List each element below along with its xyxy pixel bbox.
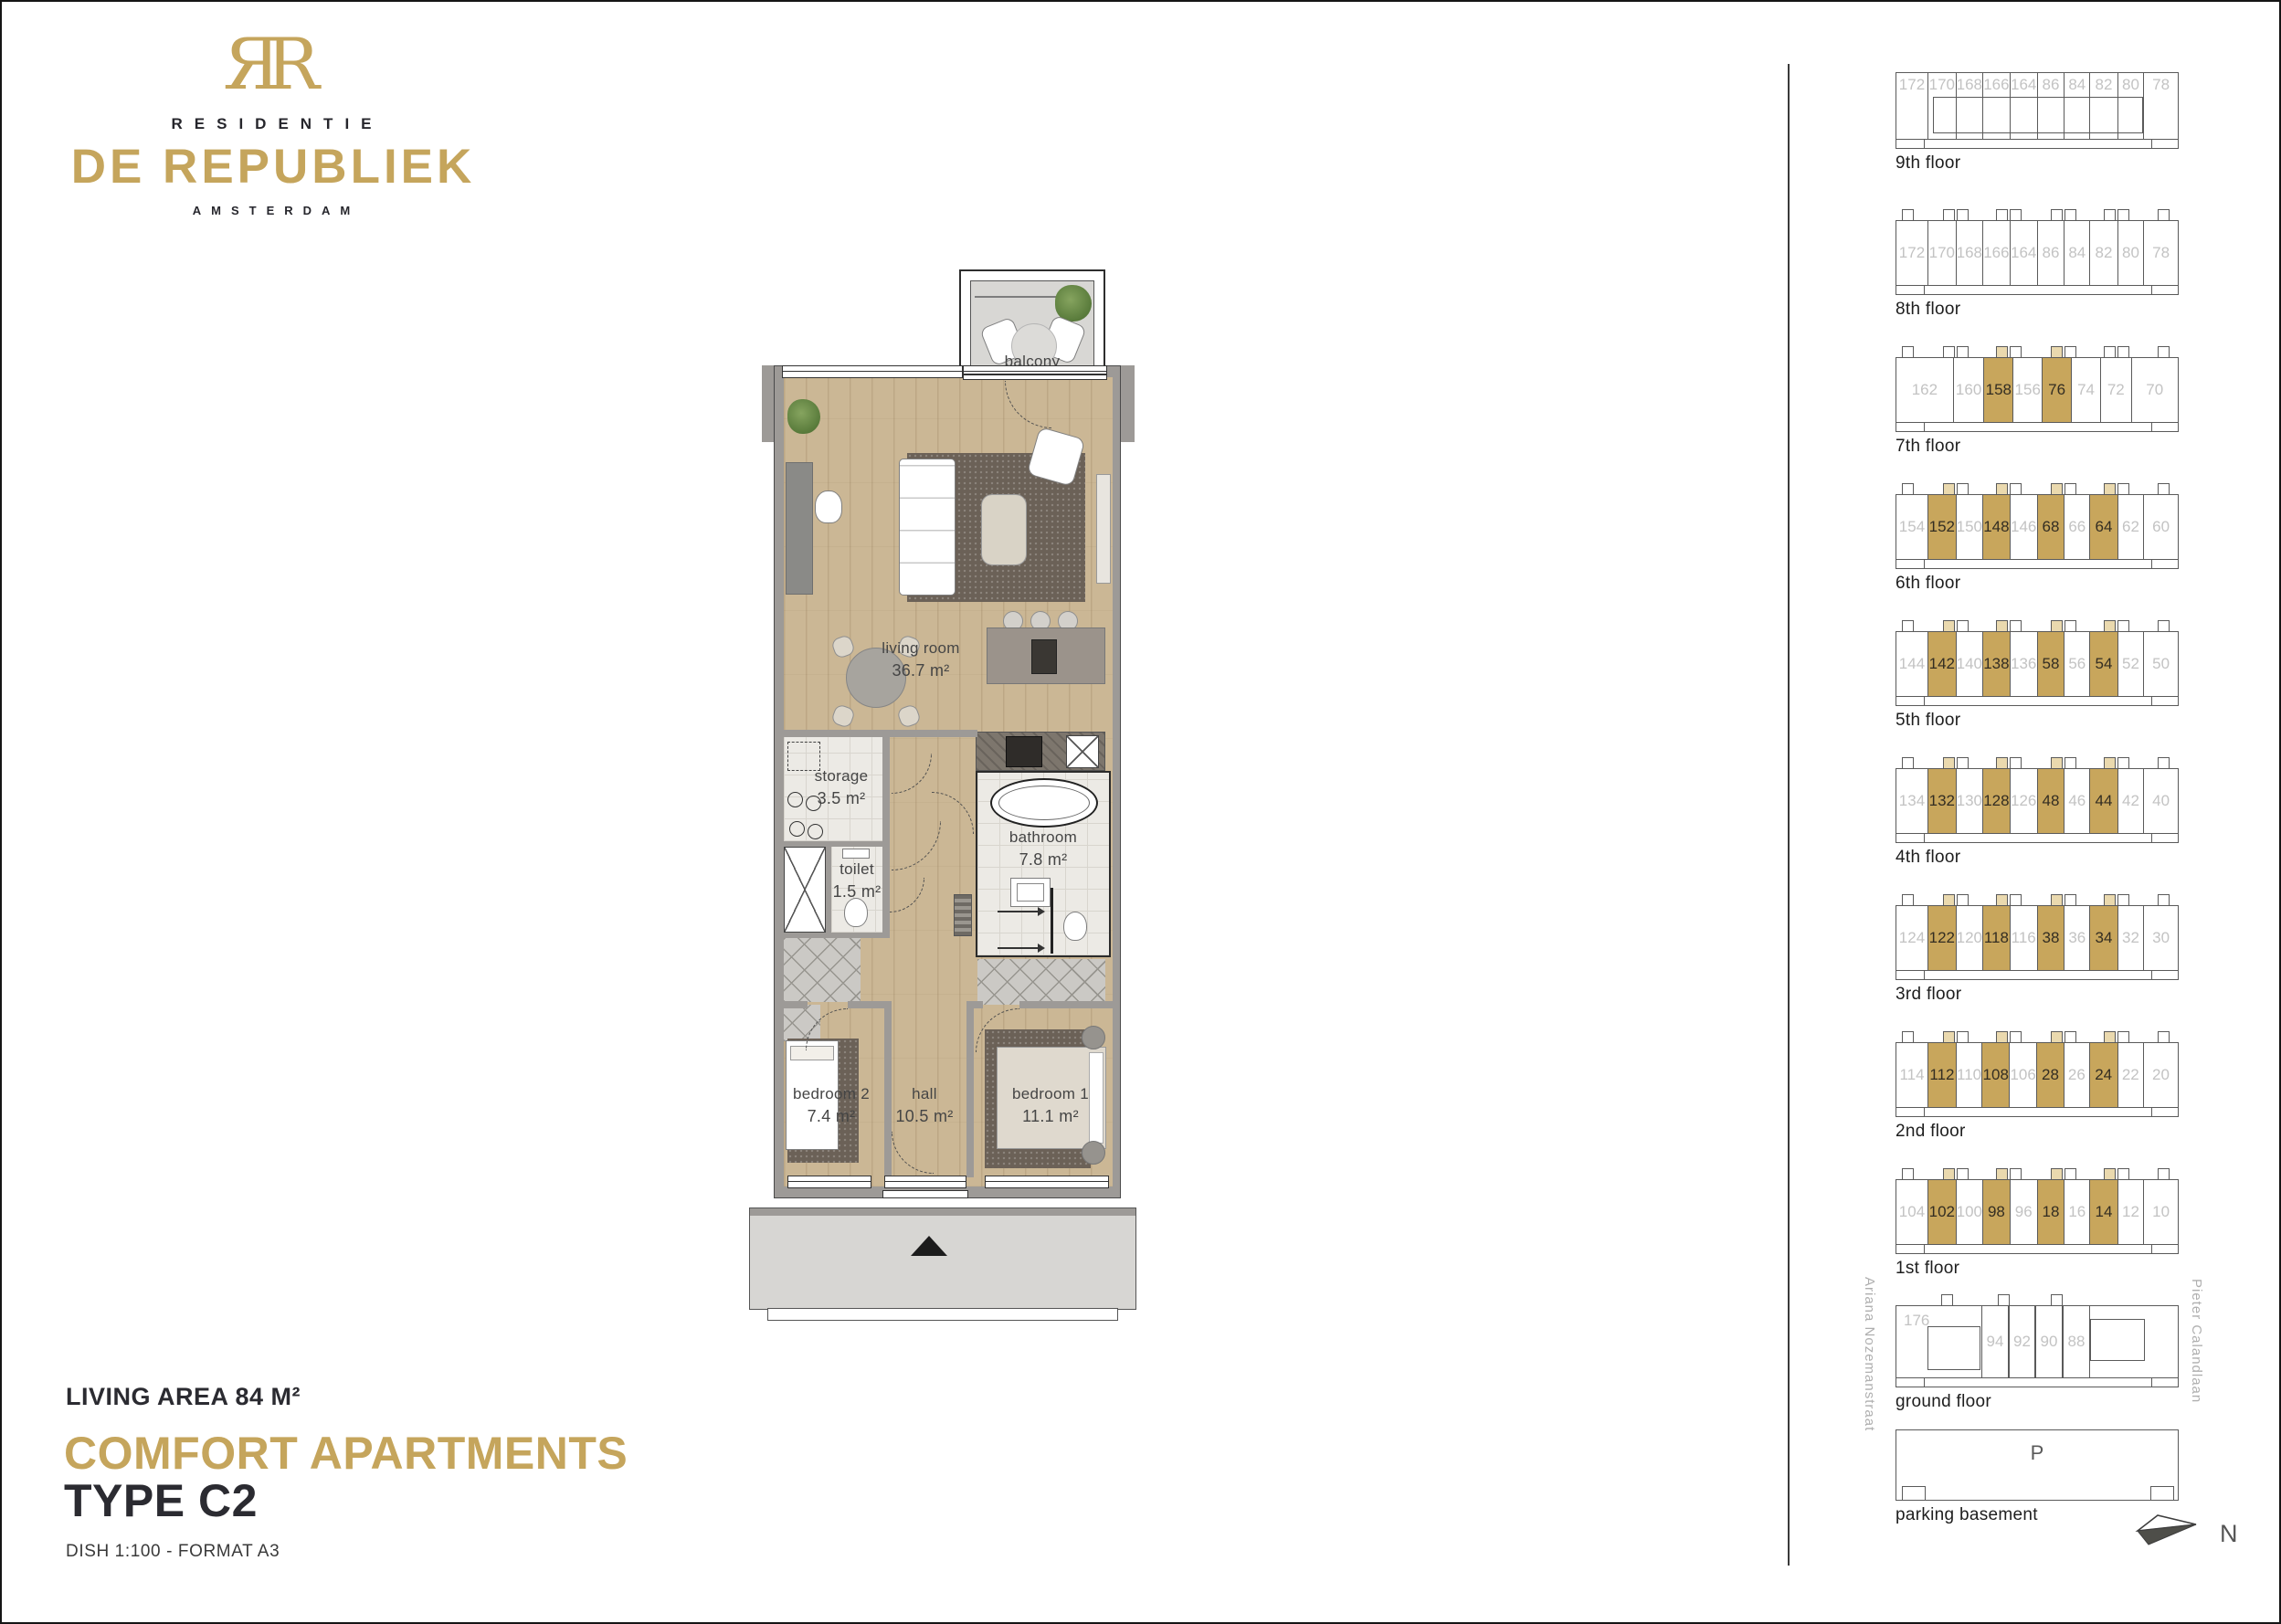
- floor-diagram-1st-floor: 104102100989618161412101st floor: [1896, 1168, 2179, 1279]
- unit-cell: 168: [1956, 73, 1982, 139]
- unit-cell: 62: [2117, 495, 2143, 559]
- vertical-divider: [1788, 64, 1790, 1566]
- sofa: [899, 459, 956, 596]
- floor-label: 3rd floor: [1896, 985, 2179, 1005]
- unit-cell: 82: [2089, 221, 2117, 285]
- desk: [786, 462, 813, 595]
- unit-cell: 112: [1927, 1043, 1956, 1107]
- unit-cell: 96: [2010, 1180, 2037, 1244]
- parking-outline: P: [1896, 1429, 2179, 1501]
- unit-cell: 32: [2117, 906, 2143, 970]
- roof-bump: [2117, 346, 2129, 357]
- roof-bump: [2065, 620, 2076, 631]
- unit-cell: 74: [2071, 358, 2100, 422]
- unit-cell: 140: [1956, 632, 1982, 696]
- roof-bump: [1902, 1168, 1914, 1179]
- roof-bump: [1957, 1168, 1969, 1179]
- floor-base-band: [1896, 834, 2179, 843]
- roof-bump: [2051, 346, 2063, 357]
- roof-bump: [2117, 1168, 2129, 1179]
- floor-base-band: [1896, 560, 2179, 569]
- toilet-icon: [1063, 912, 1087, 941]
- unit-cell: 92: [2009, 1306, 2035, 1377]
- roof-bump: [1943, 483, 1955, 494]
- entrance-stoop: [882, 1190, 968, 1198]
- roof-bump: [2051, 1168, 2063, 1179]
- unit-cell: 106: [2009, 1043, 2036, 1107]
- roof-bump: [1943, 894, 1955, 905]
- floor-outline: 1721701681661648684828078: [1896, 72, 2179, 140]
- roof-bump: [2117, 757, 2129, 768]
- doormat: [954, 894, 972, 936]
- parking-mark: P: [2031, 1441, 2044, 1465]
- parking-corner: [1902, 1486, 1926, 1500]
- plant-icon: [1055, 285, 1092, 322]
- floor-label: ground floor: [1896, 1392, 2179, 1412]
- roof-bump: [2065, 483, 2076, 494]
- roof-bump: [2158, 757, 2170, 768]
- kitchen-counter: [976, 732, 1105, 771]
- floor-base-band: [1896, 1108, 2179, 1117]
- unit-cell: 118: [1982, 906, 2010, 970]
- roof-bump: [2158, 1168, 2170, 1179]
- roof-bump: [1902, 1031, 1914, 1042]
- unit-cell: 120: [1956, 906, 1982, 970]
- unit-cell: 48: [2037, 769, 2065, 833]
- floor-plan: balcony 5.5 m²: [760, 267, 1144, 1326]
- floor-diagram-ground-floor: 17694929088ground floor: [1896, 1294, 2179, 1412]
- floor-diagram-2nd-floor: 11411211010810628262422202nd floor: [1896, 1031, 2179, 1142]
- unit-cell: 170: [1927, 73, 1956, 139]
- room-label-bedroom2: bedroom 2 7.4 m²: [787, 1084, 875, 1127]
- roof-bump: [2051, 483, 2063, 494]
- unit-cell: 110: [1956, 1043, 1981, 1107]
- category-heading: COMFORT APARTMENTS: [64, 1427, 628, 1480]
- unit-cell: 68: [2037, 495, 2065, 559]
- unit-cell: 78: [2143, 221, 2178, 285]
- roof-bump: [1902, 483, 1914, 494]
- roof-bump: [2104, 757, 2116, 768]
- roof-bump: [2065, 894, 2076, 905]
- floor-outline: 1721701681661648684828078: [1896, 220, 2179, 286]
- unit-cell: 130: [1956, 769, 1982, 833]
- roof-bump: [1957, 1031, 1969, 1042]
- roof-bump: [2117, 209, 2129, 220]
- floor-diagram-9th-floor: 17217016816616486848280789th floor: [1896, 72, 2179, 174]
- roof-bump: [2065, 1168, 2076, 1179]
- roof-bump: [1943, 209, 1955, 220]
- unit-cell: 84: [2064, 73, 2089, 139]
- roof-bump: [1996, 757, 2008, 768]
- unit-cell: 44: [2089, 769, 2117, 833]
- shower-arrow-icon: [998, 943, 1045, 954]
- kitchen-island: [987, 627, 1105, 684]
- unit-cell: 42: [2117, 769, 2143, 833]
- roof-bump: [2051, 894, 2063, 905]
- unit-cell: 86: [2037, 73, 2065, 139]
- parking-corner: [2150, 1486, 2174, 1500]
- unit-cell: 16: [2064, 1180, 2089, 1244]
- brand-city: AMSTERDAM: [52, 204, 491, 217]
- roof-bump: [2065, 1031, 2076, 1042]
- floor-outline: 1441421401381365856545250: [1896, 631, 2179, 697]
- room-label-living-room: living room 36.7 m²: [866, 638, 976, 681]
- floor-label: 1st floor: [1896, 1259, 2179, 1279]
- roof-bump: [2104, 894, 2116, 905]
- roof-bump: [2010, 1031, 2022, 1042]
- roof-bump: [1902, 757, 1914, 768]
- unit-cell: 160: [1953, 358, 1984, 422]
- gallery-walkway: [749, 1207, 1136, 1310]
- unit-cell: 98: [1982, 1180, 2010, 1244]
- floor-outline: 1341321301281264846444240: [1896, 768, 2179, 834]
- roof-bump: [2104, 483, 2116, 494]
- unit-cell: 104: [1896, 1180, 1927, 1244]
- floor-label: 5th floor: [1896, 711, 2179, 731]
- north-label: N: [2220, 1520, 2238, 1548]
- floor-base-band: [1896, 1378, 2179, 1387]
- unit-cell: 22: [2117, 1043, 2143, 1107]
- room-label-bedroom1: bedroom 1 11.1 m²: [999, 1084, 1102, 1127]
- roof-bump: [2051, 1031, 2063, 1042]
- unit-cell: 144: [1896, 632, 1927, 696]
- unit-cell: 50: [2143, 632, 2178, 696]
- roof-bump: [2010, 1168, 2022, 1179]
- brand-logo: ЯR RESIDENTIE DE REPUBLIEK AMSTERDAM: [52, 29, 491, 217]
- room-label-hall: hall 10.5 m²: [882, 1084, 966, 1127]
- floor-outline: 1141121101081062826242220: [1896, 1042, 2179, 1108]
- unit-cell: 176: [1904, 1312, 1929, 1330]
- roof-bump: [2158, 620, 2170, 631]
- unit-cell: 90: [2035, 1306, 2063, 1377]
- unit-cell: 148: [1982, 495, 2010, 559]
- entrance-door-window: [884, 1176, 966, 1188]
- floor-diagram-8th-floor: 17217016816616486848280788th floor: [1896, 209, 2179, 320]
- unit-cell: 138: [1982, 632, 2010, 696]
- washer-icon: [808, 824, 823, 839]
- unit-cell: 154: [1896, 495, 1927, 559]
- roof-bump: [2010, 209, 2022, 220]
- floor-base-band: [1896, 423, 2179, 432]
- window-band: [782, 365, 963, 378]
- unit-cell: 152: [1927, 495, 1956, 559]
- roof-bump: [1957, 757, 1969, 768]
- unit-cell: 100: [1956, 1180, 1982, 1244]
- roof-bump: [1902, 894, 1914, 905]
- inner-inset-outline: [1933, 97, 2143, 133]
- interior-wall: [784, 730, 977, 737]
- roof-bump: [1943, 620, 1955, 631]
- sink-icon: [1031, 639, 1057, 674]
- desk-chair: [815, 490, 842, 523]
- unit-cell: 52: [2117, 632, 2143, 696]
- window-band: [985, 1176, 1109, 1188]
- roof-bump: [1996, 346, 2008, 357]
- unit-cell: 116: [2010, 906, 2037, 970]
- floor-outline: 10410210098961816141210: [1896, 1179, 2179, 1245]
- unit-cell: 54: [2089, 632, 2117, 696]
- brand-name: DE REPUBLIEK: [52, 139, 491, 195]
- unit-cell: 70: [2131, 358, 2178, 422]
- roof-bump: [1996, 1031, 2008, 1042]
- unit-cell: 172: [1896, 221, 1927, 285]
- roof-bump: [1998, 1294, 2010, 1305]
- floor-base-band: [1896, 1245, 2179, 1254]
- gallery-edge: [750, 1208, 1135, 1216]
- roof-bump: [1943, 1031, 1955, 1042]
- roof-bump: [1957, 483, 1969, 494]
- inner-room-outline: [1927, 1326, 1980, 1370]
- unit-cell: 46: [2064, 769, 2089, 833]
- bathroom-sink: [1010, 878, 1051, 907]
- roof-bump: [2010, 894, 2022, 905]
- roof-bump: [2117, 620, 2129, 631]
- roof-bump: [2010, 620, 2022, 631]
- room-label-toilet: toilet 1.5 m²: [828, 859, 886, 902]
- scale-format-note: DISH 1:100 - FORMAT A3: [66, 1542, 280, 1562]
- roof-bump: [2104, 1168, 2116, 1179]
- roof-bump: [1957, 894, 1969, 905]
- unit-cell: 34: [2089, 906, 2117, 970]
- roof-bump: [2104, 1031, 2116, 1042]
- toilet-sink: [842, 849, 870, 859]
- north-arrow-icon: [2134, 1511, 2216, 1553]
- roof-bump: [1996, 209, 2008, 220]
- floor-base-band: [1896, 971, 2179, 980]
- roof-bump: [1957, 209, 1969, 220]
- roof-bump: [2158, 483, 2170, 494]
- unit-cell: 158: [1983, 358, 2012, 422]
- unit-cell: 86: [2037, 221, 2065, 285]
- roof-bump: [2051, 757, 2063, 768]
- floor-diagram-4th-floor: 13413213012812648464442404th floor: [1896, 757, 2179, 868]
- inner-room-outline: [2090, 1319, 2145, 1361]
- roof-bump: [2104, 346, 2116, 357]
- unit-cell: 128: [1982, 769, 2010, 833]
- unit-cell: 122: [1927, 906, 1956, 970]
- roof-bump: [2158, 209, 2170, 220]
- unit-cell: 166: [1982, 73, 2010, 139]
- unit-cell: 60: [2143, 495, 2178, 559]
- side-table: [1082, 1026, 1105, 1049]
- unit-cell: 164: [2010, 73, 2037, 139]
- roof-bump: [2065, 346, 2076, 357]
- side-table: [1082, 1141, 1105, 1165]
- roof-bump: [1943, 1168, 1955, 1179]
- unit-cell: 58: [2037, 632, 2065, 696]
- roof-bump: [1902, 346, 1914, 357]
- unit-cell: 28: [2036, 1043, 2064, 1107]
- unit-cell: 80: [2117, 73, 2143, 139]
- roof-bump: [1941, 1294, 1953, 1305]
- floor-label: 8th floor: [1896, 300, 2179, 320]
- floor-base-band: [1896, 697, 2179, 706]
- interior-wall: [1019, 1001, 1113, 1008]
- roof-bump: [1996, 483, 2008, 494]
- unit-cell: 36: [2064, 906, 2089, 970]
- unit-cell: 102: [1927, 1180, 1956, 1244]
- gallery-lower-band: [767, 1308, 1118, 1321]
- neighbor-wall: [1121, 365, 1135, 442]
- floor-label: 4th floor: [1896, 848, 2179, 868]
- coffee-table: [981, 494, 1027, 565]
- unit-cell: 114: [1896, 1043, 1927, 1107]
- floor-outline: 1541521501481466866646260: [1896, 494, 2179, 560]
- entrance-arrow-icon: [911, 1236, 947, 1256]
- roof-bump: [2117, 1031, 2129, 1042]
- interior-wall: [882, 730, 890, 938]
- apartment-body: living room 36.7 m²: [774, 365, 1121, 1198]
- unit-cell: 14: [2089, 1180, 2117, 1244]
- unit-cell: 132: [1927, 769, 1956, 833]
- unit-cell: 126: [2010, 769, 2037, 833]
- brand-residentie: RESIDENTIE: [52, 115, 491, 133]
- unit-cell: 166: [1982, 221, 2010, 285]
- bathtub-icon: [990, 778, 1098, 828]
- unit-cell: 146: [2010, 495, 2037, 559]
- unit-cell: 170: [1927, 221, 1956, 285]
- street-label-right: Pieter Calandlaan: [2189, 1279, 2204, 1434]
- floor-diagram-3rd-floor: 12412212011811638363432303rd floor: [1896, 894, 2179, 1005]
- brochure-page: ЯR RESIDENTIE DE REPUBLIEK AMSTERDAM LIV…: [0, 0, 2281, 1624]
- roof-bump: [1996, 894, 2008, 905]
- shower-glass: [1051, 888, 1053, 954]
- roof-bump: [1943, 757, 1955, 768]
- type-heading: TYPE C2: [64, 1474, 258, 1527]
- room-label-storage: storage 3.5 m²: [800, 766, 882, 809]
- roof-bump: [1957, 620, 1969, 631]
- roof-bump: [1902, 209, 1914, 220]
- unit-cell: 134: [1896, 769, 1927, 833]
- roof-bump: [1996, 1168, 2008, 1179]
- unit-cell: 150: [1956, 495, 1982, 559]
- unit-cell: 40: [2143, 769, 2178, 833]
- window-band: [787, 1176, 871, 1188]
- floor-diagram-5th-floor: 14414214013813658565452505th floor: [1896, 620, 2179, 731]
- street-label-left: Ariana Nozemanstraat: [1862, 1277, 1877, 1460]
- roof-bump: [2158, 894, 2170, 905]
- unit-cell: 20: [2143, 1043, 2178, 1107]
- unit-cell: 168: [1956, 221, 1982, 285]
- unit-cell: 10: [2143, 1180, 2178, 1244]
- unit-cell: 84: [2064, 221, 2089, 285]
- shower-arrow-icon: [998, 906, 1045, 917]
- unit-cell: 78: [2143, 73, 2178, 139]
- living-area-heading: LIVING AREA 84 M²: [66, 1383, 301, 1411]
- unit-cell: 66: [2064, 495, 2089, 559]
- roof-bump: [1943, 346, 1955, 357]
- roof-bump: [2158, 1031, 2170, 1042]
- shaft: [784, 847, 826, 933]
- unit-cell: 162: [1896, 358, 1953, 422]
- floor-base-band: [1896, 140, 2179, 149]
- unit-cell: 156: [2012, 358, 2042, 422]
- roof-bump: [2158, 346, 2170, 357]
- core-hatch: [977, 959, 1105, 1005]
- neighbor-wall: [762, 365, 774, 442]
- floor-label: 7th floor: [1896, 437, 2179, 457]
- roof-bump: [2051, 1294, 2063, 1305]
- unit-cell: 80: [2117, 221, 2143, 285]
- roof-bump: [2065, 757, 2076, 768]
- roof-bump: [1996, 620, 2008, 631]
- floor-base-band: [1896, 286, 2179, 295]
- unit-cell: 108: [1981, 1043, 2009, 1107]
- balcony-slider-door: [963, 365, 1107, 380]
- unit-cell: 124: [1896, 906, 1927, 970]
- unit-cell: 172: [1896, 73, 1927, 139]
- wall-cabinet: [1096, 474, 1111, 584]
- roof-bump: [2104, 209, 2116, 220]
- floor-diagram-6th-floor: 15415215014814668666462606th floor: [1896, 483, 2179, 594]
- unit-cell: 142: [1927, 632, 1956, 696]
- floor-outline: 1241221201181163836343230: [1896, 905, 2179, 971]
- floor-outline: 16216015815676747270: [1896, 357, 2179, 423]
- ground-outline: 17694929088: [1896, 1305, 2179, 1378]
- stove-icon: [1006, 736, 1042, 767]
- roof-bump: [2051, 209, 2063, 220]
- room-label-bathroom: bathroom 7.8 m²: [983, 828, 1104, 870]
- unit-cell: 12: [2117, 1180, 2143, 1244]
- roof-bump: [2010, 757, 2022, 768]
- unit-cell: 82: [2089, 73, 2117, 139]
- interior-wall: [974, 1001, 983, 1008]
- unit-cell: 136: [2010, 632, 2037, 696]
- unit-cell: 38: [2037, 906, 2065, 970]
- floor-diagram-7th-floor: 162160158156767472707th floor: [1896, 346, 2179, 457]
- plant-icon: [787, 399, 820, 434]
- unit-cell: 88: [2063, 1306, 2090, 1377]
- unit-cell: 18: [2037, 1180, 2065, 1244]
- unit-cell: 164: [2010, 221, 2037, 285]
- unit-cell: 24: [2089, 1043, 2117, 1107]
- roof-bump: [2117, 483, 2129, 494]
- roof-bump: [2010, 346, 2022, 357]
- interior-wall: [784, 1001, 808, 1008]
- fridge-icon: [1066, 735, 1099, 768]
- interior-wall: [966, 1001, 974, 1177]
- floor-label: 9th floor: [1896, 153, 2179, 174]
- floor-label: 6th floor: [1896, 574, 2179, 594]
- unit-cell: 56: [2064, 632, 2089, 696]
- brand-monogram-icon: ЯR: [52, 29, 491, 100]
- unit-cell: 94: [1981, 1306, 2009, 1377]
- roof-bump: [1957, 346, 1969, 357]
- unit-cell: 76: [2042, 358, 2071, 422]
- unit-cell: 64: [2089, 495, 2117, 559]
- roof-bump: [2104, 620, 2116, 631]
- washer-icon: [789, 821, 805, 837]
- core-hatch: [784, 938, 861, 1002]
- roof-bump: [1902, 620, 1914, 631]
- floor-label: 2nd floor: [1896, 1122, 2179, 1142]
- unit-cell: 30: [2143, 906, 2178, 970]
- roof-bump: [2051, 620, 2063, 631]
- roof-bump: [2065, 209, 2076, 220]
- roof-bump: [2010, 483, 2022, 494]
- roof-bump: [2117, 894, 2129, 905]
- unit-cell: 26: [2064, 1043, 2089, 1107]
- unit-cell: 72: [2100, 358, 2131, 422]
